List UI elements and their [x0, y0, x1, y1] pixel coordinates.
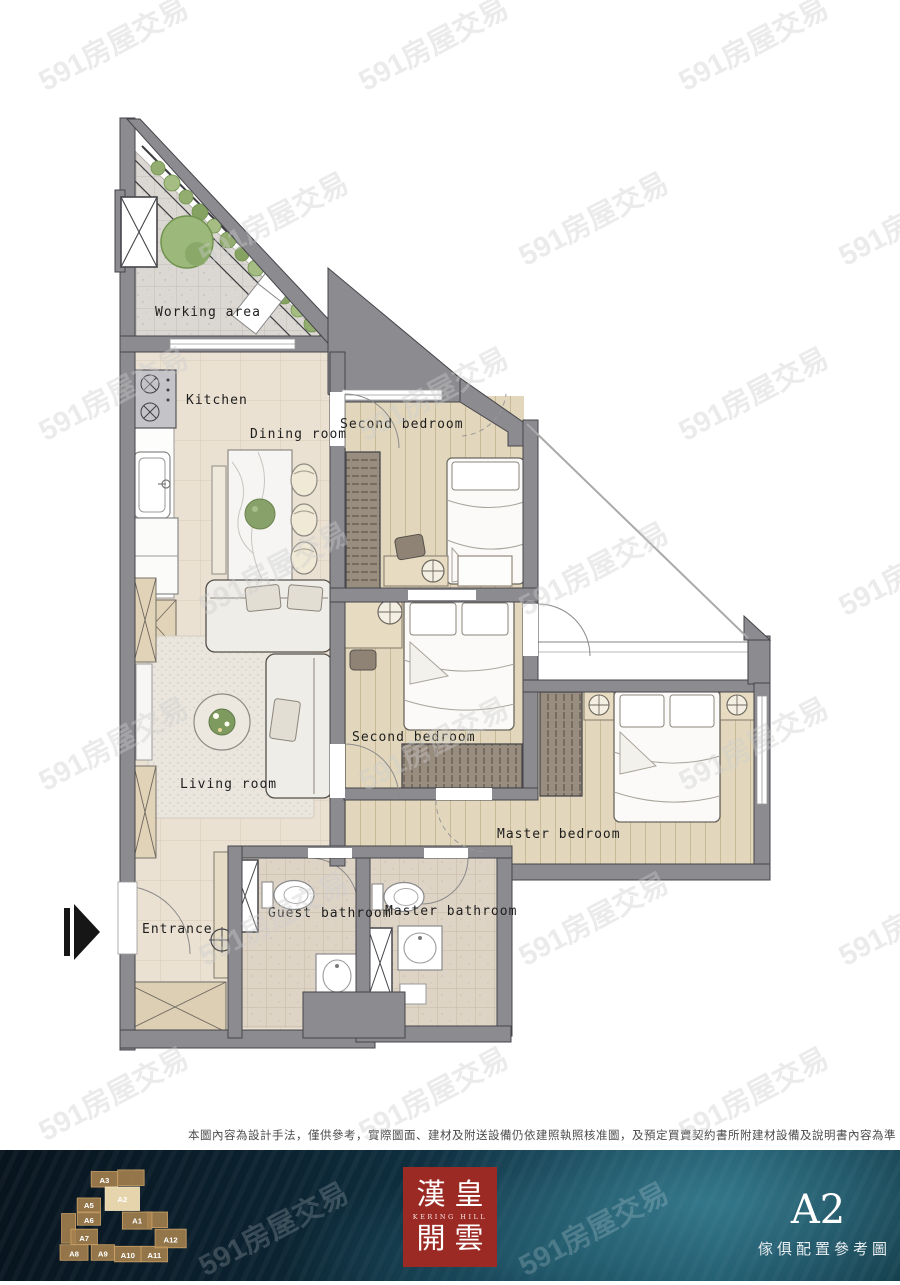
- shaft-top-left: [121, 197, 157, 267]
- coffee-table: [194, 694, 250, 750]
- stool-mid-bedroom: [350, 650, 376, 670]
- stove: [132, 370, 176, 428]
- wall-bath-top: [228, 846, 512, 858]
- label-master-bath: Master bathroom: [385, 904, 517, 919]
- opening-guest-bath-door: [308, 848, 352, 858]
- label-second-bedroom-top: Second bedroom: [340, 417, 464, 432]
- shaft-master: [368, 928, 392, 998]
- double-bed-mid: [404, 598, 514, 730]
- entrance-arrow-icon: [64, 904, 100, 960]
- label-living: Living room: [180, 777, 277, 792]
- disclaimer-text: 本圖內容為設計手法，僅供參考，實際圖面、建材及附送設備仍依建照執照核准圖，及預定…: [188, 1127, 896, 1143]
- table-plant: [245, 499, 275, 529]
- tv-console: [136, 664, 152, 760]
- label-guest-bath: Guest bathroom: [268, 906, 392, 921]
- wall-living-east: [330, 602, 345, 866]
- opening-entry-door: [118, 882, 137, 954]
- wall-corner-triangle: [744, 616, 770, 640]
- keyplan-label: A9: [98, 1249, 109, 1258]
- footer-bar: A3 A2 A5 A6 A1 A7 A8 A9 A10 A11 A12 漢皇 K…: [0, 1150, 900, 1281]
- logo-line2: 開雲: [407, 1223, 492, 1255]
- label-entrance: Entrance: [142, 922, 213, 937]
- opening-between-bedrooms: [408, 590, 476, 600]
- nightstand-top-bedroom: [458, 556, 512, 586]
- nightstand-left: [584, 690, 614, 720]
- wall-master-north: [523, 680, 770, 692]
- keyplan-label: A7: [79, 1234, 89, 1243]
- keyplan-label: A5: [84, 1201, 95, 1210]
- sink-master: [398, 926, 442, 970]
- wall-ne-wedge: [328, 268, 460, 402]
- balcony: [532, 642, 748, 682]
- chair-top-bedroom: [394, 534, 425, 561]
- double-bed-master: [614, 690, 720, 822]
- wall-bath-east: [497, 858, 512, 1036]
- keyplan-label: A12: [164, 1235, 179, 1244]
- unit-caption: 傢俱配置參考圖: [758, 1238, 878, 1259]
- opening-balcony-door: [523, 604, 538, 656]
- wall-master-south: [497, 864, 770, 880]
- plant-dot: [252, 506, 258, 512]
- dining-furniture: [212, 450, 317, 588]
- keyplan-label: A10: [121, 1251, 135, 1260]
- keyplan-label: A3: [99, 1176, 110, 1185]
- sink-guest: [316, 954, 358, 998]
- wardrobe-top-bedroom: [346, 452, 380, 590]
- wall-balcony-right: [748, 636, 770, 684]
- floor-plan: Working area Kitchen Dining room Second …: [0, 0, 900, 1150]
- keyplan-label: A11: [147, 1251, 161, 1260]
- brand-logo: 漢皇 KERING HILL 開雲: [403, 1167, 497, 1267]
- keyplan-cell: [118, 1170, 144, 1186]
- label-second-bedroom-mid: Second bedroom: [352, 730, 476, 745]
- opening-master-door: [436, 788, 492, 800]
- wall-bath-west: [228, 846, 242, 1038]
- keyplan: A3 A2 A5 A6 A1 A7 A8 A9 A10 A11 A12: [46, 1156, 194, 1275]
- keyplan-label: A6: [84, 1216, 95, 1225]
- label-dining: Dining room: [250, 427, 347, 442]
- logo-line1: 漢皇: [407, 1179, 492, 1211]
- wardrobe-mid-bedroom: [402, 744, 522, 788]
- logo-subtitle: KERING HILL: [413, 1213, 487, 1221]
- unit-info: A2 傢俱配置參考圖: [758, 1190, 878, 1259]
- nightstand-right: [720, 690, 754, 720]
- sink: [134, 452, 170, 518]
- unit-label: A2: [758, 1190, 878, 1230]
- label-kitchen: Kitchen: [186, 393, 248, 408]
- label-working-area: Working area: [155, 305, 261, 320]
- dining-bench: [212, 466, 226, 574]
- wall-bath-block: [303, 992, 405, 1038]
- keyplan-label: A1: [132, 1217, 143, 1226]
- label-master-bedroom: Master bedroom: [497, 827, 621, 842]
- wardrobe-master: [540, 692, 582, 796]
- keyplan-label: A8: [69, 1249, 80, 1258]
- boundary-line: [527, 424, 748, 638]
- opening-master-bath-door: [424, 848, 468, 858]
- keyplan-label-a2: A2: [117, 1195, 128, 1204]
- entry-mat: [124, 982, 226, 1032]
- tree-inner: [185, 242, 209, 266]
- opening-mid-door: [330, 744, 345, 798]
- dining-chairs: [291, 464, 317, 574]
- wall-bed-top-west: [330, 352, 345, 602]
